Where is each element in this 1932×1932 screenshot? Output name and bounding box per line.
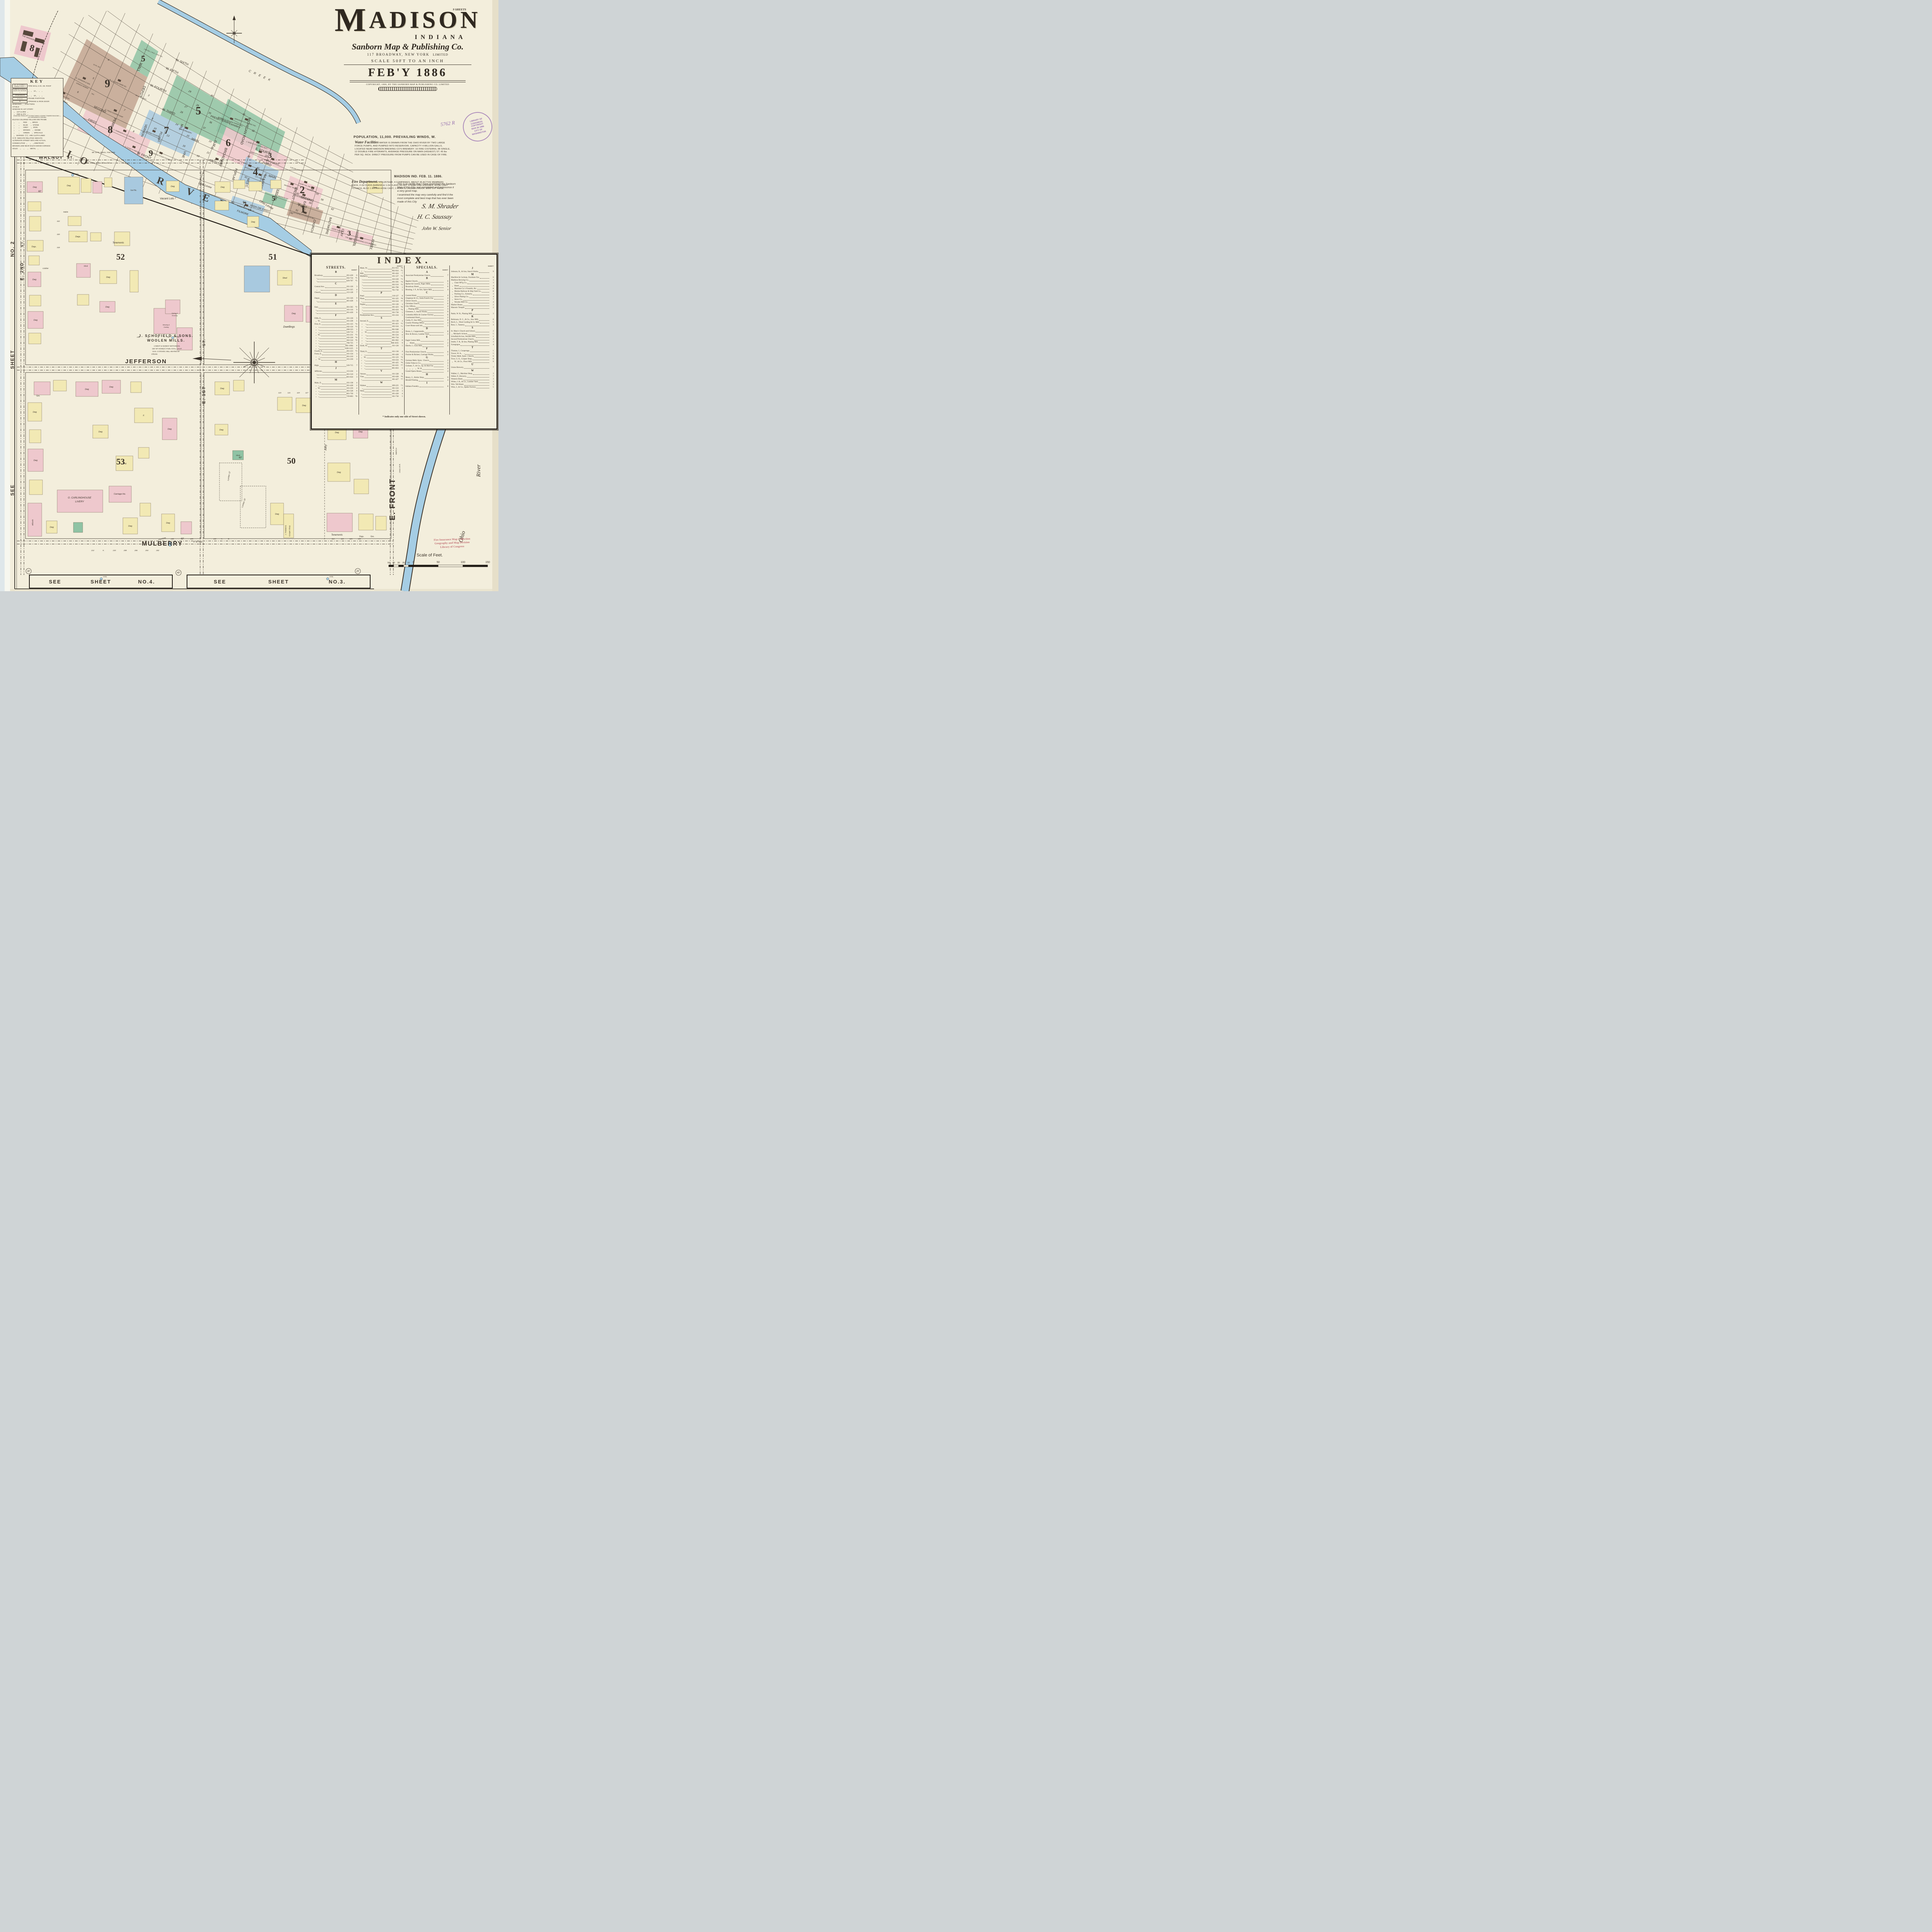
dotted-leader (320, 338, 346, 339)
index-entry-sheet: 8 (399, 295, 403, 298)
index-entry-name: White, J. B., & Co., Lumber Yard, (451, 381, 478, 383)
index-entry: Cosby, P., Saw Mill,8 (406, 319, 449, 322)
index-entry: Continental Hotel,2 (406, 316, 449, 319)
index-entry-name: „ (315, 311, 316, 314)
index-entry: Associate Presbyterian Church,7 (406, 274, 449, 277)
map-label: J.M.& I.R.R. (399, 464, 401, 473)
index-entry-sheet: 4 (444, 297, 448, 300)
index-entry-range: 101-126 (392, 345, 398, 347)
page-title: MADISON (317, 3, 498, 36)
map-label: 112 (341, 538, 344, 540)
index-letter: G (406, 356, 449, 359)
map-label: 110 (349, 538, 352, 540)
index-entry: Poplar,101-1263 (360, 303, 403, 306)
index-entry: „ Machine Co.'s Foundry, &c.8 (451, 287, 494, 290)
dotted-leader (320, 349, 344, 350)
index-entry-range: 201-423 (392, 306, 398, 309)
index-entry: Henry, C., Boiler Shop,9 (406, 376, 449, 379)
dotted-leader (363, 288, 391, 289)
dotted-leader (319, 308, 346, 308)
dotted-leader (320, 357, 346, 358)
key-row: ╭╮ ╭╮ ╭╮FRAME PARTITION (12, 97, 62, 100)
dotted-leader (366, 355, 391, 355)
index-entry: Graham, T., & Co., Sp. & Hub Fac.5 (406, 365, 449, 367)
index-entry: „601-7063 (360, 286, 403, 289)
key-text: OPENING & IRON DOOR (28, 100, 49, 103)
index-entry-name: City Offices, (406, 305, 416, 308)
map-label: 206 (134, 549, 138, 551)
pointer-ornament (192, 357, 202, 361)
index-entry: First, E.,101-125*4 (315, 323, 357, 326)
signature: H. C. Saussay (417, 214, 453, 221)
index-entry-name: „ „ (360, 359, 366, 362)
index-entry-range: 101-136 (392, 350, 398, 353)
index-entry-range: 701-730 (392, 289, 398, 292)
index-entry-sheet: 7 (399, 337, 403, 339)
index-entry: „ „201-4282 (360, 354, 403, 356)
dotted-leader (363, 308, 391, 308)
index-entry: „ „201-3254 (315, 289, 357, 291)
index-entry-sheet: *5 (353, 280, 357, 282)
title-limited: LIMITED (433, 53, 448, 56)
index-entry: Smith, T. R., & Son, Planing Mill,3 (451, 341, 494, 344)
dotted-leader (365, 378, 392, 378)
map-label: Carding (163, 327, 169, 328)
dotted-leader (461, 345, 489, 346)
map-label: 126 (190, 538, 193, 540)
index-entry-sheet: 7 (490, 298, 494, 301)
dotted-leader (430, 335, 444, 335)
scale-segment (399, 565, 404, 567)
index-entry-range: 113-224 (347, 370, 353, 373)
index-entry-sheet: 6 (444, 351, 448, 354)
index-entry-sheet: 9 (490, 270, 494, 273)
index-entry-sheet: 4 (490, 338, 494, 341)
index-entry-name: „ W., (315, 358, 321, 361)
building (29, 480, 43, 495)
dotted-leader (473, 360, 489, 360)
index-entry-name: „ W., (315, 320, 321, 323)
index-entry-sheet: 5 (490, 386, 494, 389)
index-entry: Courier Printing Office,4 (406, 322, 449, 325)
index-entry-range: 502-724 (347, 277, 353, 280)
index-entry-name: Barber & Cravens, Paper Mills, (406, 283, 431, 286)
map-label: E. 1ST (202, 386, 206, 404)
index-entry-range: 902-916 (392, 270, 398, 272)
index-entry-sheet: *9 (399, 267, 403, 270)
index-entry-name: German Meth. Episc. Church, (406, 359, 430, 362)
index-entry: Dorse, J., Coppersmith,8 (406, 330, 449, 333)
overview-block-number: 18 (196, 155, 200, 158)
index-entry: Herald Printing,4 (406, 379, 449, 382)
sheet-number: 5 (196, 105, 201, 117)
map-label: 202 (156, 549, 159, 551)
dotted-leader (420, 318, 444, 318)
index-entry-sheet: *5 (399, 270, 403, 272)
index-entry-range: 101-230 (347, 358, 353, 361)
index-entry-name: „ „ (360, 364, 366, 367)
index-entry: Tower, W. A., „5 (451, 352, 494, 355)
certification-text: This is to certify that I have examined … (397, 182, 494, 204)
key-glyph: STEAM BOILER (12, 94, 27, 97)
index-entry: Main, W.,811-931*9 (360, 267, 403, 270)
dotted-leader (460, 286, 489, 287)
index-entry-name: Fifth, E., (315, 317, 321, 320)
dotted-leader (415, 344, 444, 344)
circled-dimension-label: 30' (27, 570, 31, 573)
index-entry: Chapman & Co., Soda Fount'n Fac.4 (406, 297, 449, 300)
index-entry-name: „ (360, 378, 362, 381)
index-entry-name: „ „ (315, 342, 319, 345)
dotted-leader (321, 360, 346, 361)
scale-tick-label: 20 (402, 562, 405, 564)
dotted-leader (325, 287, 346, 288)
index-entry-range: 301-427 (392, 378, 398, 381)
key-glyph: NO. OF STORIES 3 SHINGLE ROOF ✕ (12, 84, 27, 88)
dotted-leader (321, 322, 346, 322)
index-entry-name: Vernon, (360, 373, 366, 376)
sheet-number: 9 (149, 148, 153, 158)
index-entry: „501-7305 (360, 311, 403, 314)
building (90, 233, 101, 241)
sheet-number: 3 (347, 230, 351, 237)
index-entry-sheet: 7 (444, 339, 448, 342)
water-facilities-paragraph: Water Facilities WATER IS DRAWN FROM THE… (355, 140, 452, 156)
dotted-leader (420, 387, 444, 387)
building-label: Dwg (335, 432, 339, 434)
index-entry: „ „902-916*5 (360, 270, 403, 272)
index-entry: „601-6243 (315, 376, 357, 379)
dotted-leader (474, 357, 489, 357)
index-entry-sheet: *4 (399, 356, 403, 359)
index-entry: „101-1169 (315, 309, 357, 311)
map-label: 117 (305, 392, 308, 394)
index-entry-name: „ „ (360, 354, 366, 356)
index-entry: „ „201-4282 (315, 384, 357, 387)
index-entry-sheet: 3 (490, 378, 494, 381)
index-entry-name: Fourth, E., (315, 350, 323, 353)
index-entry-name: „ „ (360, 270, 365, 272)
index-entry-sheet: 8 (490, 358, 494, 361)
building (277, 397, 292, 410)
index-entry: „202-424*4 (360, 309, 403, 311)
dotted-leader (366, 364, 391, 364)
dotted-leader (469, 303, 489, 303)
index-entry-range: 209-225 (392, 384, 398, 387)
index-entry-sheet: 4 (399, 350, 403, 353)
dotted-leader (365, 272, 391, 272)
index-entry-sheet: 2 (399, 354, 403, 356)
map-label: O. CARLINGHOUSE (68, 497, 92, 499)
index-entry-sheet: *3 (399, 275, 403, 278)
dotted-leader (482, 292, 489, 293)
overview-street-label: W. FOURTH (150, 83, 167, 93)
sheet-number: 7 (164, 125, 169, 136)
index-entry: Sixth, W.,101-1265 (360, 345, 403, 347)
index-entry-name: „ (360, 393, 362, 395)
index-entry-sheet: 2 (444, 359, 448, 362)
map-label: Dwellings (283, 326, 295, 328)
dotted-leader (479, 320, 489, 321)
key-color-rule: „ MARKED ⒸⓁ ARE CLOTH LINED (12, 134, 62, 137)
index-entry-range: 601-706 (392, 286, 398, 289)
index-entry: Vine,202-428*6 (360, 376, 403, 378)
index-entry-name: High, (315, 364, 319, 367)
index-entry-sheet: 3 (490, 282, 494, 284)
index-entry-sheet: 3 (490, 324, 494, 327)
index-letter: S (451, 327, 494, 330)
index-entry: „201-505*4 (360, 281, 403, 284)
map-label: 318 (57, 247, 60, 248)
key-color-rule: ALTERNATE STREET NO'S ARE ACTUAL (12, 139, 62, 142)
map-label: 51 (269, 252, 277, 262)
index-entry: „ „201-425*6 (360, 362, 403, 364)
index-entry: „ „202-324*1 (360, 325, 403, 328)
building (233, 180, 245, 189)
index-entry-sheet: 1 (353, 328, 357, 331)
index-entry-sheet: 2 (444, 354, 448, 356)
index-letter: H (315, 361, 357, 364)
index-entry: „401-4285 (315, 300, 357, 303)
index-entry-name: Third, E., (360, 350, 368, 353)
dotted-leader (420, 287, 444, 288)
dotted-leader (320, 347, 345, 347)
index-entry-sheet: 3 (444, 308, 448, 311)
map-label: Cobbler (43, 267, 49, 269)
index-entry: Eagle Cotton Mill,7 (406, 339, 449, 342)
index-entry-range: 202-510 (392, 284, 398, 286)
scale-segment (463, 565, 488, 567)
index-entry-name: „ „ (315, 345, 319, 347)
map-label: MULBERRY (142, 541, 183, 547)
dotted-leader (363, 291, 391, 291)
index-entry-name: Christ Church, (406, 300, 417, 303)
index-entry-sheet: 5 (490, 321, 494, 324)
index-entry-sheet: 7 (490, 375, 494, 378)
scale-segment (389, 565, 394, 567)
index-entry-name: West, (360, 390, 364, 393)
key-row: STEAM BOILER„ „ 18 „ „ „ (12, 94, 62, 97)
see-sheet-text: NO.3. (329, 579, 346, 585)
index-entry-name: Baptist Church, (406, 280, 418, 283)
certification-line: a very good map. (397, 189, 494, 193)
index-entry: Clements, J., Starch Works,9 (406, 311, 449, 313)
index-entry: Wise, J., & Co., Spoke Factory,5 (451, 386, 494, 389)
index-entry-sheet: 2 (490, 306, 494, 309)
dotted-leader (366, 305, 391, 305)
shipyard-block: THE MADISON SHIP YARD8 (14, 25, 51, 61)
map-label: 119 (297, 392, 300, 394)
building (29, 256, 39, 265)
rule-ornament (350, 80, 466, 82)
map-label: 222 (85, 162, 88, 164)
dotted-leader (363, 286, 391, 286)
dotted-leader (362, 380, 392, 381)
map-label: 150' OF HOSE(1") FUEL COAL. LIGHT (152, 348, 182, 350)
building-label: Dwg (221, 186, 224, 189)
dotted-leader (464, 368, 489, 369)
index-entry-name: Wm. Tell Hotel, (451, 383, 464, 386)
index-letter: V (360, 370, 403, 373)
map-label: Cooper Shop (289, 526, 291, 537)
map-label: Billiards (32, 519, 34, 526)
map-label: 210 (112, 549, 116, 551)
index-entry-range: 301-510 (392, 387, 398, 390)
scale-segment (408, 565, 413, 567)
title-publisher: Sanborn Map & Publishing Co. (317, 42, 498, 52)
index-entry-range: 101-326 (347, 297, 353, 300)
index-entry-sheet: 6 (444, 280, 448, 283)
building-label: Dwg (337, 471, 341, 474)
sheet-number: 6 (226, 137, 231, 148)
map-label: LIVERY (75, 500, 85, 503)
map-label: S. (168, 336, 169, 338)
map-label: 208 (123, 549, 127, 551)
index-letter: U (451, 363, 494, 366)
index-entry: „ „801-10048 (315, 345, 357, 347)
index-entry: Church,113-1287 (315, 291, 357, 294)
building-label: Dwg (292, 313, 296, 315)
index-entry-sheet: 5 (353, 320, 357, 323)
map-label: K. (103, 549, 104, 551)
dotted-leader (421, 341, 444, 342)
key-glyph: COMPOST'N ROOF ● SLATE OR TIN ROOF ○ (12, 88, 27, 94)
index-entry-sheet: 6 (353, 390, 357, 393)
map-label: A. (221, 538, 223, 540)
title-address: 117 BROADWAY, NEW YORK LIMITED (317, 53, 498, 56)
index-entry-sheet: 7 (353, 393, 357, 395)
index-letter: D (406, 327, 449, 330)
dotted-leader (465, 308, 489, 309)
index-entry-range: 113-128 (347, 291, 353, 294)
map-label: 322 (57, 220, 60, 222)
index-entry-sheet: 3 (490, 381, 494, 383)
dotted-leader (363, 389, 391, 389)
map-label: 60' (239, 457, 242, 459)
dotted-leader (430, 361, 444, 362)
index-entry-sheet: 4 (353, 289, 357, 291)
building-label: Dwg (166, 522, 170, 524)
index-entry: „301-427*7 (360, 378, 403, 381)
index-entry-range: 101-136 (392, 320, 398, 323)
index-letter: S (360, 317, 403, 320)
index-entry: „ „102-124*3 (315, 326, 357, 328)
index-entry-sheet: 9 (399, 342, 403, 345)
index-entry-range: 101-138 (347, 382, 353, 384)
dotted-leader (467, 377, 489, 378)
index-entry-sheet: 2 (490, 330, 494, 333)
building-label: Dwg (33, 411, 37, 413)
index-entry-name: „ (315, 280, 317, 282)
index-entry-sheet: 2 (444, 342, 448, 345)
index-entry-name: „ (315, 376, 317, 379)
index-entry-name: Clements, J., Starch Works, (406, 311, 428, 313)
pointer-line (202, 359, 231, 360)
dotted-leader (469, 281, 489, 281)
index-entry-sheet: 5 (399, 311, 403, 314)
index-entry-range: 301-528 (347, 390, 353, 393)
map-label: 212 (91, 549, 94, 551)
index-entry-sheet: *7 (399, 378, 403, 381)
sheet-number: 3 (268, 151, 272, 159)
index-entry-sheet: *2 (399, 284, 403, 286)
dotted-leader (320, 333, 346, 333)
index-entry: Bruning, J. F., & Son, Spice Mill,4 (406, 289, 449, 291)
index-entry-name: Bruning, J. F., & Son, Spice Mill, (406, 289, 432, 291)
index-entry-sheet: 2 (353, 384, 357, 387)
map-label: 220 (90, 162, 94, 164)
index-entry: „ „901-9403 (360, 328, 403, 331)
index-entry-name: „ (315, 309, 316, 311)
index-entry: Schofield & Son, Woolen Mill,1 (451, 335, 494, 338)
building-label: Dwg (34, 319, 37, 321)
index-entry: Broadway,201-4306 (315, 274, 357, 277)
index-entry-sheet: 5 (399, 314, 403, 317)
map-label: ST. (67, 156, 74, 160)
index-entry-name: Thomas, J., Cooperage, (451, 350, 470, 352)
index-entry-name: Henry, C., Boiler Shop, (406, 376, 424, 379)
index-entry: Front, E.,101-1243 (315, 353, 357, 355)
index-entry-name: Walker, C., Machine Shop, (451, 372, 473, 375)
index-entry-sheet: 3 (490, 341, 494, 344)
index-entry-sheet: 4 (444, 322, 448, 325)
index-entry: „ W.,101-2244 (360, 331, 403, 334)
dotted-leader (468, 335, 489, 335)
index-entry-sheet: 3 (490, 293, 494, 296)
index-entry-name: „ W., (360, 331, 367, 334)
dotted-leader (321, 290, 346, 291)
dotted-leader (367, 344, 391, 344)
building (81, 179, 91, 192)
dotted-leader (463, 380, 489, 380)
index-entry-name: „ „ (360, 362, 366, 364)
dotted-leader (476, 332, 489, 332)
dotted-leader (434, 355, 444, 356)
index-entry-name: Cosby, P., Saw Mill, (406, 319, 422, 322)
scale-tick-label: 100 (461, 561, 465, 564)
building (29, 295, 41, 306)
index-entry-name: „ Michael's School, (451, 333, 468, 335)
index-entry-range: 201-505 (392, 281, 398, 284)
index-entry-name: „ „ (315, 326, 319, 328)
see-sheet-text: SHEET (90, 579, 111, 585)
map-label: B. (228, 538, 230, 540)
index-entry-sheet: 7 (444, 274, 448, 277)
building-label: Dwg (168, 428, 172, 430)
index-entry-range: 101-116 (347, 309, 353, 311)
map-label: WOOLEN MILLS. (147, 338, 185, 342)
index-entry-name: Trow, G. E., Cooper Shop, (451, 358, 472, 361)
index-entry-sheet: 6 (490, 276, 494, 279)
key-color-rule: BROKEN LINE NEAR B'LD'G-WOOD CORNICE (12, 145, 62, 148)
building-label: Dwg (50, 526, 54, 529)
index-entry-name: „ Packing Co., formerly, (451, 293, 472, 296)
index-entry-name: Globe Tobacco Co., (406, 362, 422, 365)
index-entry-name: „ „ (360, 334, 366, 337)
index-entry-range: 101-325 (392, 298, 398, 300)
lumber-yard (219, 463, 242, 501)
index-entry-name: „ Hotel, (406, 342, 415, 345)
index-entry-sheet: 4 (399, 331, 403, 334)
scale-segment (403, 565, 408, 567)
index-letter: E (315, 303, 357, 306)
index-entry: MacKim & Cochran, Furniture Fac.6 (451, 276, 494, 279)
map-label: J. SCHOFIELD & SONS. (139, 334, 194, 338)
map-label: Gro. (371, 536, 374, 538)
index-entry: Pattie, W. R., Planing Mill,3 (451, 313, 494, 315)
map-label: Vacant Lots (160, 197, 174, 200)
dotted-leader (480, 323, 489, 323)
